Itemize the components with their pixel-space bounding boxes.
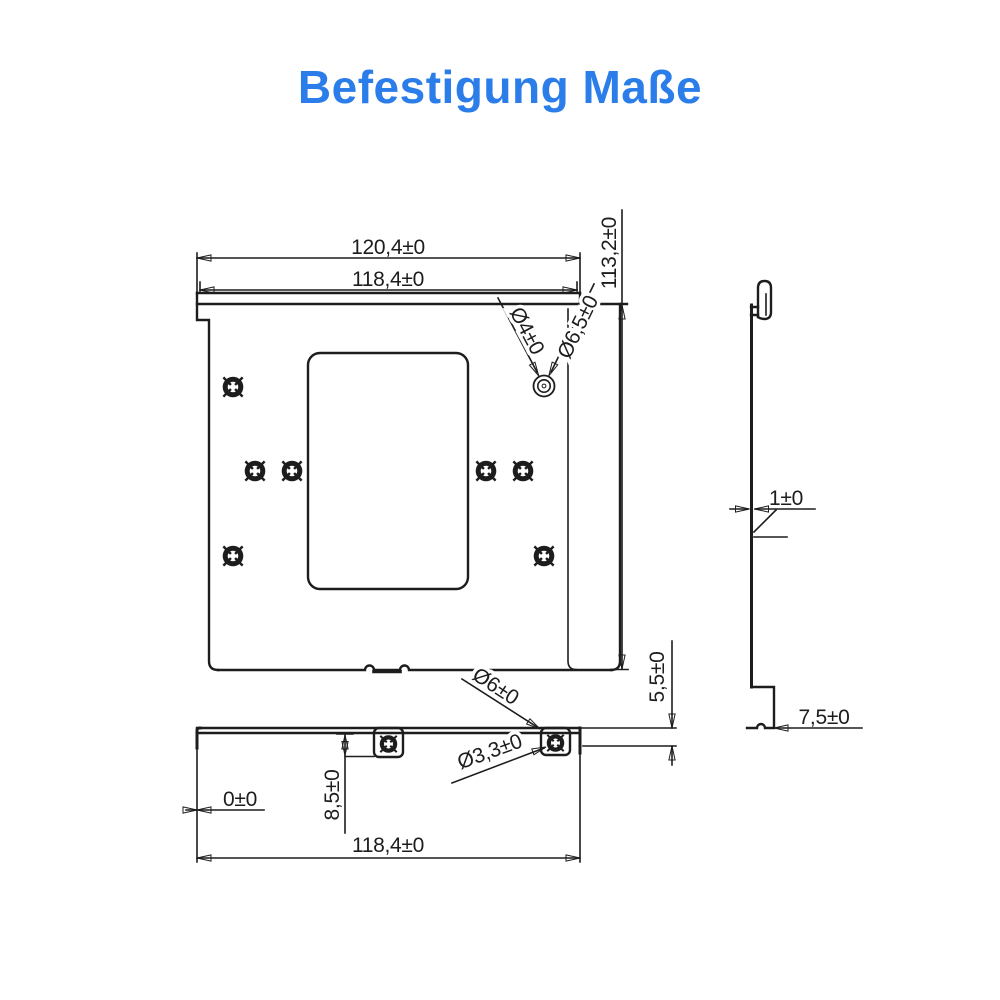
dim-bottom-tab-offset: 8,5±0 (321, 770, 344, 821)
dim-front-body-width: 118,4±0 (352, 268, 424, 291)
front-view: 120,4±0 118,4±0 113,2±0 Ø4±0 Ø6,5±0 (197, 210, 628, 672)
dim-corner-hole-inner: Ø4±0 (505, 303, 549, 358)
technical-drawing-canvas: 120,4±0 118,4±0 113,2±0 Ø4±0 Ø6,5±0 (0, 0, 1000, 1000)
dim-side-thickness: 1±0 (769, 487, 803, 510)
dim-front-height: 113,2±0 (598, 217, 621, 289)
dim-bottom-tab-height: 5,5±0 (646, 652, 669, 703)
bottom-view: 0±0 8,5±0 118,4±0 5,5±0 Ø6±0 Ø3,3±0 (183, 641, 676, 862)
dim-bottom-width: 118,4±0 (352, 834, 424, 857)
corner-hole (534, 376, 555, 397)
side-view: 1±0 7,5±0 (730, 281, 862, 731)
dim-front-overall-width: 120,4±0 (351, 236, 425, 259)
dim-grommet-inner: Ø3,3±0 (454, 730, 525, 775)
drawing-page: Befestigung Maße (0, 0, 1000, 1000)
dim-corner-hole-outer: Ø6,5±0 (553, 292, 603, 362)
dim-bottom-flush-offset: 0±0 (223, 788, 257, 811)
dim-side-foot-width: 7,5±0 (799, 706, 850, 729)
